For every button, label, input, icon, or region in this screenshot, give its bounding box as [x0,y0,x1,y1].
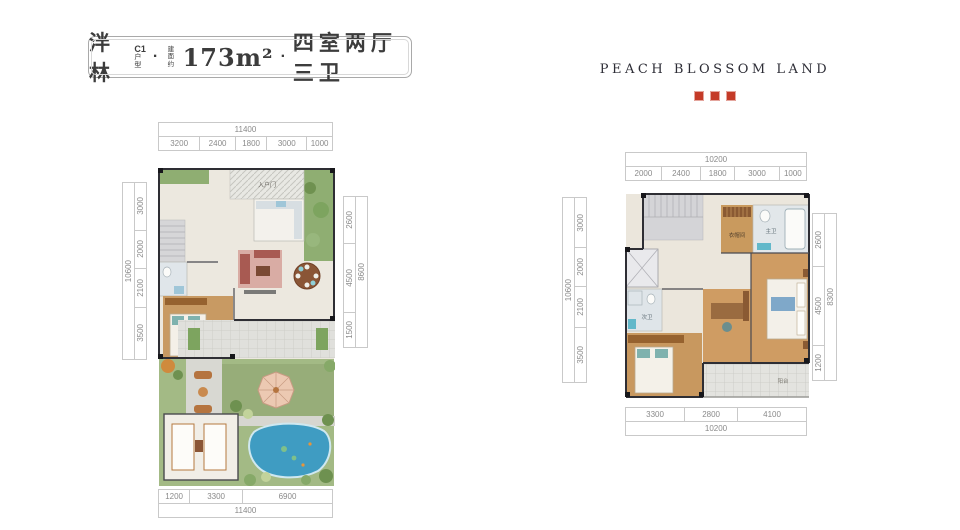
brand-name: PEACH BLOSSOM LAND [585,62,845,77]
second-bath-label: 次卫 [641,313,653,321]
floor2-right-dimensions: 2600 4500 1200 8300 [812,213,837,381]
unit-code: C1 户型 [134,45,146,69]
lounger [204,424,226,470]
master-bedroom [751,253,809,363]
dim-segment: 3500 [574,327,587,383]
bookshelf [743,291,749,321]
dim-segment: 2000 [134,230,147,269]
sofa [254,250,280,258]
bedroom [626,333,702,397]
sink-icon [174,286,184,294]
desk [711,303,743,319]
planter [188,328,200,350]
sink-icon [628,319,636,329]
dim-total: 11400 [158,503,333,518]
dining-table [294,263,320,289]
dim-segment: 1000 [779,166,807,181]
entry-walk: 入户门 [230,169,304,199]
dim-segment: 3500 [134,307,147,360]
balcony-label: 阳台 [777,377,789,385]
entry-label: 入户门 [258,181,276,189]
shrub-icon [301,475,311,485]
pavilion-icon [258,372,294,408]
unit-title-card: 泮林 C1 户型 · 建面约 173m² · 四室两厅三卫 [88,36,412,78]
dim-segment: 3300 [625,407,685,422]
second-bathroom: 次卫 [626,289,662,331]
planting-strip [159,169,209,184]
seal-icon [726,91,736,101]
floor1-left-dimensions: 10600 3000 2000 2100 3500 [122,182,147,360]
separator-dot: · [281,48,286,66]
shrub-icon [322,414,334,426]
toilet-icon [760,210,770,222]
fish-icon [308,442,311,445]
dim-segment: 3200 [158,136,200,151]
shrub-icon [243,409,253,419]
dim-total: 10200 [625,421,807,436]
master-bath-label: 主卫 [765,227,777,235]
study [703,289,751,363]
layout-description: 四室两厅三卫 [293,27,411,87]
dim-segment: 1800 [235,136,267,151]
shrub-icon [230,400,242,412]
chair-icon [722,322,732,332]
kitchen [254,199,304,241]
dim-segment: 1200 [158,489,190,504]
cabana [164,414,238,480]
elevator [626,249,658,287]
project-name: 泮林 [89,27,128,87]
dim-segment: 2000 [574,247,587,288]
tv-console [244,290,276,294]
tree-icon [306,233,320,247]
terrace [178,320,335,358]
dim-segment: 1000 [306,136,333,151]
floor2-left-dimensions: 10600 3000 2000 2100 3500 [562,197,587,383]
floor1-plan-drawing: 入户门 [158,168,335,487]
seal-icon [710,91,720,101]
tree-icon [313,202,329,218]
dim-segment: 2000 [625,166,662,181]
stairs [159,220,185,262]
toilet-icon [163,267,171,277]
living-room [238,250,282,294]
shrub-icon [319,469,333,483]
wardrobe [628,335,684,343]
sink-icon [276,201,286,207]
dim-total: 8600 [355,196,368,348]
separator-dot: · [153,48,158,66]
brand-block: PEACH BLOSSOM LAND [585,62,845,101]
dim-segment: 1800 [700,166,735,181]
coffee-table [256,266,270,276]
planter [316,328,328,350]
fish-icon [301,463,304,466]
dim-segment: 3000 [134,182,147,231]
floor2-top-dimensions: 10200 2000 2400 1800 3000 1000 [625,152,807,181]
dim-segment: 2100 [574,286,587,328]
floor2-plan-drawing: 衣帽间 主卫 次卫 [625,193,810,405]
closet: 衣帽间 [721,205,753,253]
bathroom [159,262,187,296]
area-prefix: 建面约 [165,46,176,68]
shrub-icon [261,472,271,482]
stairs [643,194,703,240]
floor1-bottom-dimensions: 1200 3300 6900 11400 [158,489,333,518]
floor1-plan: 入户门 [158,168,335,487]
master-bathroom: 主卫 [753,205,809,253]
sink-icon [757,243,771,250]
dim-total: 10200 [625,152,807,167]
toilet-icon [647,294,655,304]
dim-segment: 3300 [189,489,243,504]
lounger [172,424,194,470]
floor2-bottom-dimensions: 3300 2800 4100 10200 [625,407,807,436]
bathtub-icon [785,209,805,249]
balcony: 阳台 [703,363,809,397]
dim-segment: 4100 [737,407,807,422]
garden [159,359,335,486]
dim-segment: 3000 [734,166,779,181]
pond [249,424,330,478]
dim-segment: 6900 [242,489,333,504]
dim-segment: 2800 [684,407,738,422]
sofa [240,254,250,284]
wardrobe [165,298,207,305]
seal-icon [694,91,704,101]
dim-segment: 2400 [661,166,701,181]
floor1-right-dimensions: 2600 4500 1500 8600 [343,196,368,348]
floor2-plan: 衣帽间 主卫 次卫 [625,193,810,405]
shrub-icon [173,370,183,380]
shrub-icon [244,474,256,486]
area-value: 173m² [183,43,274,72]
dim-total: 11400 [158,122,333,137]
dim-segment: 2400 [199,136,236,151]
dim-total: 8300 [824,213,837,381]
closet-label: 衣帽间 [729,231,746,239]
dim-segment: 3000 [574,197,587,248]
dim-segment: 3000 [266,136,307,151]
garden-table [198,387,208,397]
floor1-top-dimensions: 11400 3200 2400 1800 3000 1000 [158,122,333,151]
brand-seals [585,91,845,101]
dim-segment: 2100 [134,268,147,308]
tree-icon [304,182,316,194]
shrub-icon [161,359,175,373]
